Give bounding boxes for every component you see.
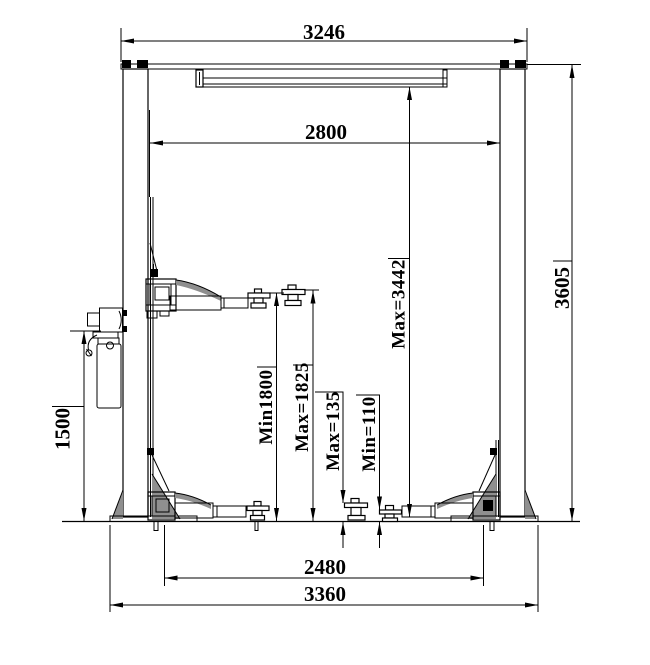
label-pad-height-max: Max=135 bbox=[323, 391, 344, 471]
right-post bbox=[496, 69, 536, 519]
lowered-right-carriage-arm bbox=[380, 448, 501, 522]
left-post bbox=[112, 69, 153, 519]
top-beam bbox=[121, 60, 527, 69]
overhead-switch-bar bbox=[196, 70, 447, 87]
label-height-overall: 3605 bbox=[550, 267, 574, 309]
label-span-base-overall: 3360 bbox=[304, 582, 346, 606]
power-unit-knob bbox=[107, 342, 114, 349]
label-power-unit-height: 1500 bbox=[51, 408, 75, 450]
floating-pad-max-raise bbox=[282, 285, 305, 306]
lowered-right-arm-pad bbox=[380, 506, 402, 522]
lowered-left-carriage-arm bbox=[147, 448, 269, 531]
raised-carriage-arm bbox=[146, 243, 270, 318]
drawing-canvas: 3246 2800 3605 Max=3442 Min1800 Max=1825… bbox=[0, 0, 650, 665]
lowered-left-arm-pad bbox=[247, 502, 269, 531]
label-lift-height-max: Max=1825 bbox=[292, 362, 313, 452]
two-post-lift-diagram: 3246 2800 3605 Max=3442 Min1800 Max=1825… bbox=[0, 0, 650, 665]
label-span-top: 3246 bbox=[303, 20, 345, 44]
label-span-between-posts: 2800 bbox=[305, 120, 347, 144]
floating-pad-max-screw bbox=[345, 499, 368, 521]
power-cable bbox=[88, 335, 97, 350]
label-lift-height-min: Min1800 bbox=[256, 369, 277, 444]
dimension-graphics bbox=[52, 28, 581, 612]
power-unit bbox=[86, 308, 127, 408]
label-max-clearance: Max=3442 bbox=[389, 259, 410, 349]
label-span-base-inner: 2480 bbox=[304, 555, 346, 579]
label-pad-height-min: Min=110 bbox=[359, 396, 380, 472]
raised-arm-pad bbox=[248, 289, 270, 308]
